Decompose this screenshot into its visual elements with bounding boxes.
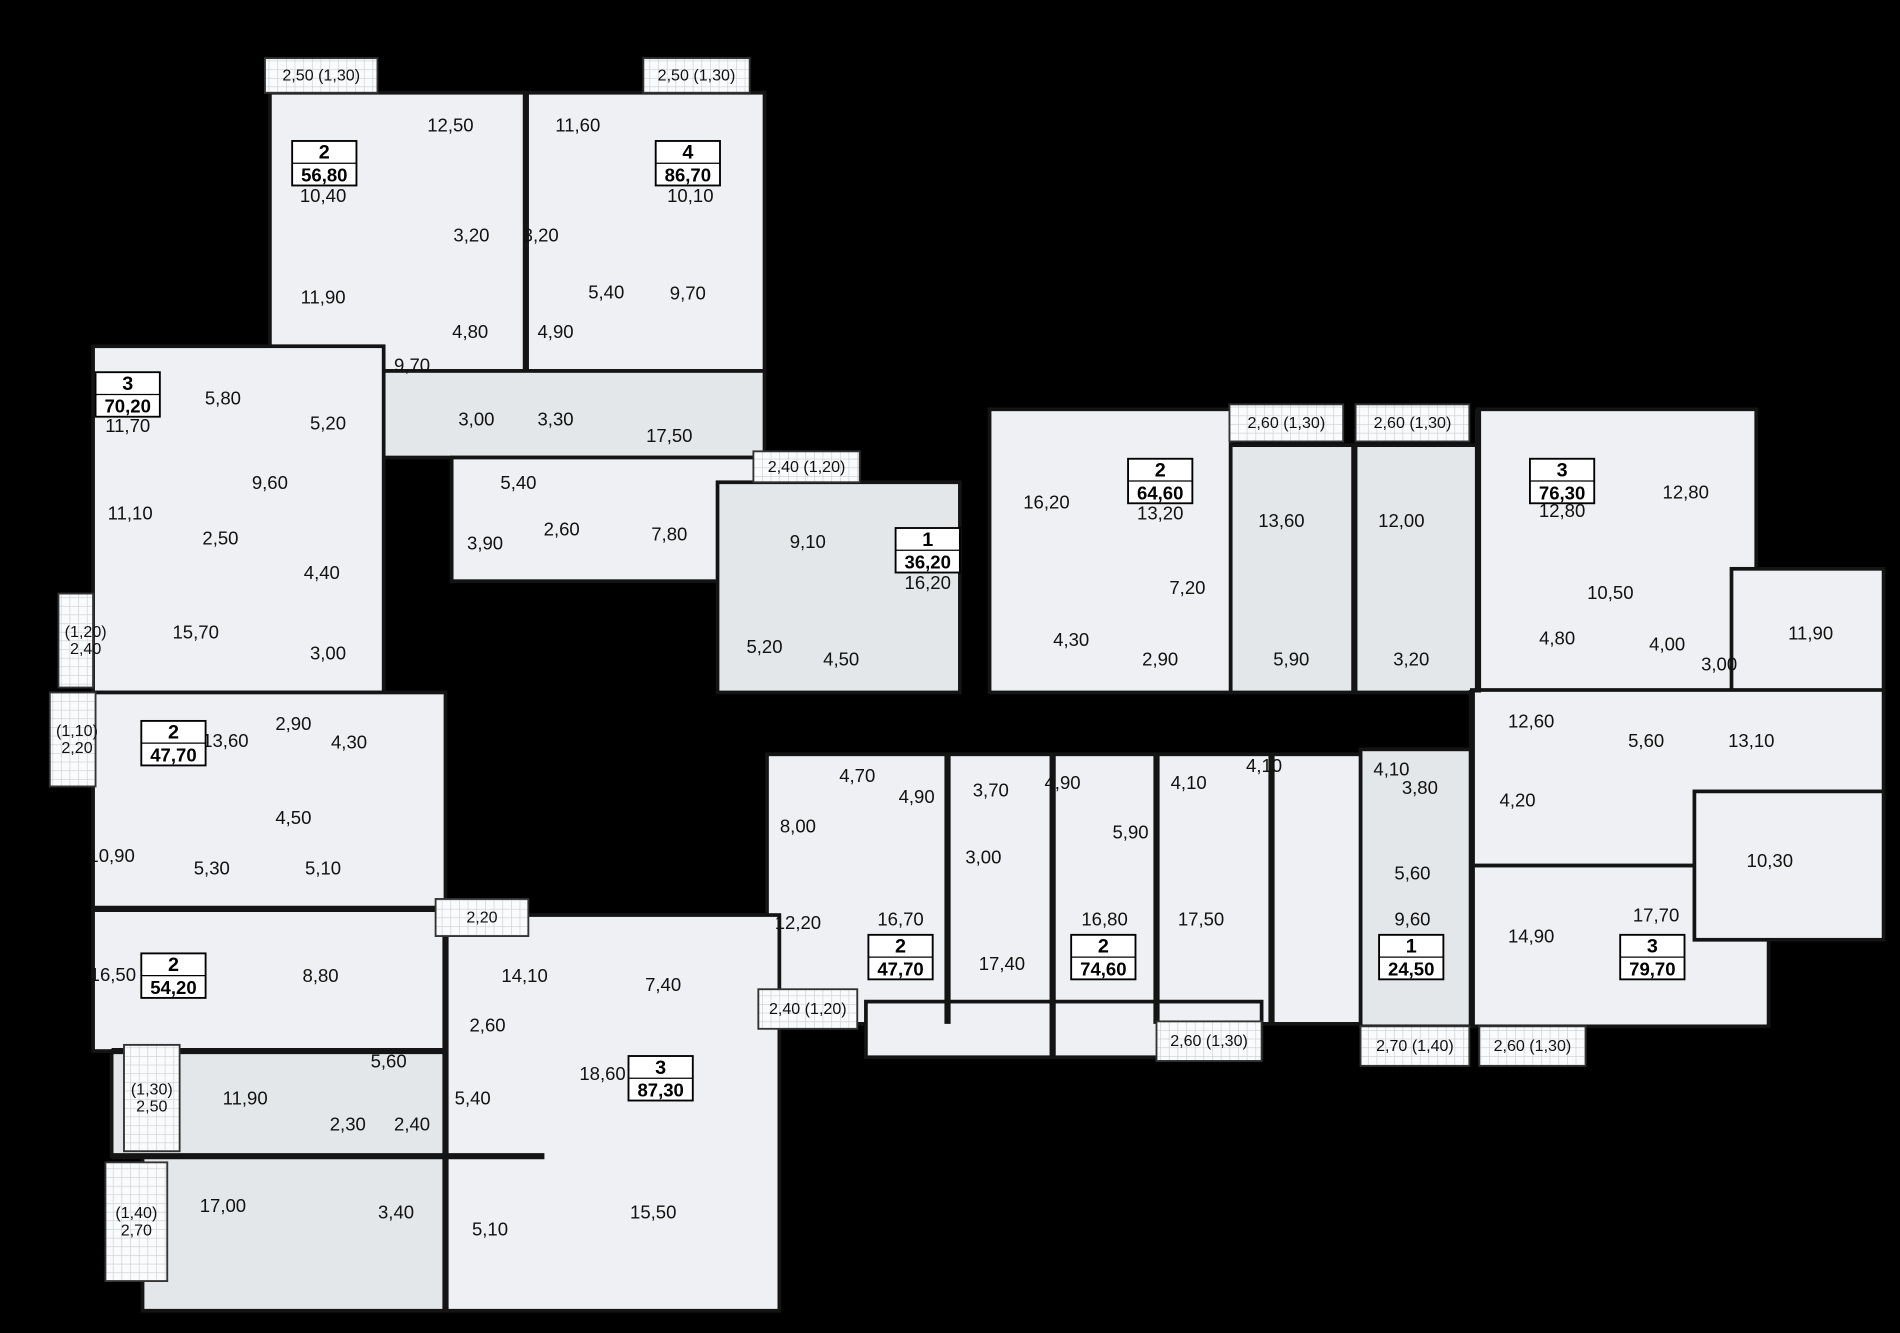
apartment-total-area: 79,70 [1629,958,1675,979]
room-area-label: 10,10 [667,185,713,206]
apartment-total-area: 54,20 [150,977,196,998]
room-area-label: 12,20 [775,912,821,933]
room-area-label: 5,40 [500,472,536,493]
room-area-label: 2,90 [275,713,311,734]
room-area-label: 4,80 [452,321,488,342]
balcony-area-label: 2,60 (1,30) [1374,414,1452,432]
room-area-label: 4,40 [304,562,340,583]
room-area-label: 4,00 [1649,634,1685,655]
room-area-label: 4,30 [331,731,367,752]
room-area-label: 17,00 [200,1195,246,1216]
room-area-label: 16,50 [90,964,136,985]
room-area-label: 3,00 [1701,654,1737,675]
apartment-rooms-count: 2 [168,954,179,976]
apartment-rooms-count: 1 [1406,936,1417,958]
room-area-label: 17,40 [979,953,1025,974]
room-area-label: 2,50 [202,527,238,548]
room-area-label: 2,30 [330,1114,366,1135]
room-area-label: 5,60 [1394,863,1430,884]
apartment-total-area: 74,60 [1080,958,1126,979]
room-area-label: 11,60 [555,114,600,135]
room-area-label: 16,70 [877,908,923,929]
room-area-label: 14,90 [1508,926,1554,947]
balcony-area-label: 2,60 (1,30) [1247,414,1325,432]
apartment-rooms-count: 4 [682,142,693,164]
room-area-label: 2,40 [394,1114,430,1135]
room-area-label: 2,60 [469,1015,505,1036]
room-area-label: 7,20 [1169,577,1205,598]
balcony-area-label: 2,40 [70,640,101,658]
room-area-label: 3,40 [378,1201,414,1222]
room-area-label: 13,20 [1137,503,1183,524]
room-area-label: 3,30 [538,409,574,430]
room-area-label: 4,90 [1044,772,1080,793]
room-area-label: 9,70 [394,354,430,375]
room-area-label: 18,60 [579,1063,625,1084]
room-area-label: 17,70 [1633,905,1679,926]
room-area-label: 16,80 [1081,908,1127,929]
floor-block [270,93,765,371]
room-area-label: 3,20 [523,224,559,245]
room-area-label: 4,30 [1053,629,1089,650]
apartment-total-area: 36,20 [905,552,951,573]
balcony-area-label: 2,60 (1,30) [1494,1037,1572,1055]
floor-block [445,915,779,1311]
room-area-label: 13,10 [1728,730,1774,751]
floor-block [384,371,765,458]
room-area-label: 16,20 [905,572,951,593]
apartment-rooms-count: 2 [895,936,906,958]
room-area-label: 4,90 [899,786,935,807]
balcony-area-label: 2,70 [121,1221,152,1239]
room-area-label: 4,70 [839,765,875,786]
room-area-label: 4,20 [1500,790,1536,811]
room-area-label: 4,50 [275,807,311,828]
balcony-area-label: 2,70 (1,40) [1376,1037,1454,1055]
room-area-label: 5,60 [371,1050,407,1071]
room-area-label: 4,10 [1171,772,1207,793]
room-area-label: 3,00 [310,642,346,663]
room-area-label: 12,80 [1663,482,1709,503]
room-area-label: 13,60 [202,730,248,751]
room-area-label: 3,00 [458,409,494,430]
room-area-label: 5,40 [455,1088,491,1109]
room-area-label: 3,80 [1402,777,1438,798]
balcony-area-label: 2,50 (1,30) [282,66,360,84]
balcony-area-label: 2,40 (1,20) [768,458,846,476]
room-area-label: 9,60 [252,472,288,493]
balcony-area-label: 2,20 [466,909,497,927]
room-area-label: 3,20 [1393,649,1429,670]
room-area-label: 12,50 [427,114,473,135]
apartment-total-area: 86,70 [665,164,711,185]
room-area-label: 9,10 [790,531,826,552]
room-area-label: 12,60 [1508,710,1554,731]
room-area-label: 8,00 [780,816,816,837]
floor-block [990,409,1231,692]
apartment-rooms-count: 3 [1647,936,1658,958]
room-area-label: 5,20 [746,636,782,657]
balcony-area-label: (1,10) [56,722,98,740]
room-area-label: 3,00 [965,846,1001,867]
room-area-label: 13,60 [1258,510,1304,531]
apartment-rooms-count: 2 [168,722,179,744]
balcony-area-label: (1,30) [131,1080,173,1098]
apartment-rooms-count: 3 [122,373,133,395]
balcony-area-label: 2,50 [136,1098,167,1116]
room-area-label: 3,70 [973,780,1009,801]
room-area-label: 11,10 [108,503,153,524]
apartment-total-area: 56,80 [301,164,347,185]
balcony-area-label: 2,40 (1,20) [769,1000,847,1018]
room-area-label: 4,50 [823,649,859,670]
room-area-label: 10,30 [1747,850,1793,871]
room-area-label: 5,10 [472,1219,508,1240]
room-area-label: 12,00 [1378,510,1424,531]
room-area-label: 11,90 [223,1088,268,1109]
balcony-area-label: 2,50 (1,30) [658,66,736,84]
apartment-rooms-count: 1 [922,529,933,551]
room-area-label: 7,40 [645,974,681,995]
floor-plan-svg: 2,50 (1,30)2,50 (1,30)(1,20)2,402,40 (1,… [0,0,1900,1333]
room-area-label: 5,10 [305,858,341,879]
apartment-total-area: 24,50 [1388,958,1434,979]
room-area-label: 5,80 [205,388,241,409]
room-area-label: 11,90 [1788,623,1833,644]
room-area-label: 5,90 [1273,649,1309,670]
room-area-label: 5,60 [1628,730,1664,751]
room-area-label: 10,40 [300,185,346,206]
room-area-label: 3,20 [453,224,489,245]
floor-block [1478,409,1756,692]
balcony-area-label: 2,20 [61,739,92,757]
apartment-rooms-count: 2 [319,142,330,164]
room-area-label: 2,90 [1142,649,1178,670]
room-area-label: 4,10 [1246,755,1282,776]
room-area-label: 5,30 [194,858,230,879]
apartment-rooms-count: 2 [1098,936,1109,958]
floor-block [143,1156,446,1311]
room-area-label: 3,90 [467,532,503,553]
room-area-label: 2,60 [544,519,580,540]
room-area-label: 9,70 [670,283,706,304]
balcony-area-label: 2,60 (1,30) [1170,1032,1248,1050]
apartment-total-area: 64,60 [1137,482,1183,503]
room-area-label: 15,70 [173,621,219,642]
floor-plan: 2,50 (1,30)2,50 (1,30)(1,20)2,402,40 (1,… [0,0,1900,1333]
balcony-area-label: (1,20) [65,623,107,641]
room-area-label: 16,20 [1023,492,1069,513]
room-area-label: 17,50 [1178,908,1224,929]
room-area-label: 17,50 [646,425,692,446]
room-area-label: 15,50 [630,1201,676,1222]
apartment-total-area: 76,30 [1539,482,1585,503]
room-area-label: 7,80 [651,524,687,545]
room-area-label: 9,60 [1394,908,1430,929]
room-area-label: 11,70 [105,415,150,436]
room-area-label: 8,80 [303,965,339,986]
room-area-label: 4,90 [538,321,574,342]
room-area-label: 10,90 [88,845,134,866]
apartment-rooms-count: 3 [655,1057,666,1079]
room-area-label: 5,90 [1112,822,1148,843]
room-area-label: 5,20 [310,412,346,433]
apartment-total-area: 87,30 [637,1080,683,1101]
room-area-label: 14,10 [501,965,547,986]
room-area-label: 10,50 [1587,582,1633,603]
apartment-rooms-count: 3 [1557,460,1568,482]
room-area-label: 11,90 [301,286,346,307]
apartment-rooms-count: 2 [1155,460,1166,482]
room-area-label: 5,40 [588,281,624,302]
apartment-total-area: 47,70 [150,744,196,765]
apartment-total-area: 70,20 [105,396,151,417]
room-area-label: 4,80 [1539,628,1575,649]
apartment-total-area: 47,70 [877,958,923,979]
balcony-area-label: (1,40) [115,1204,157,1222]
